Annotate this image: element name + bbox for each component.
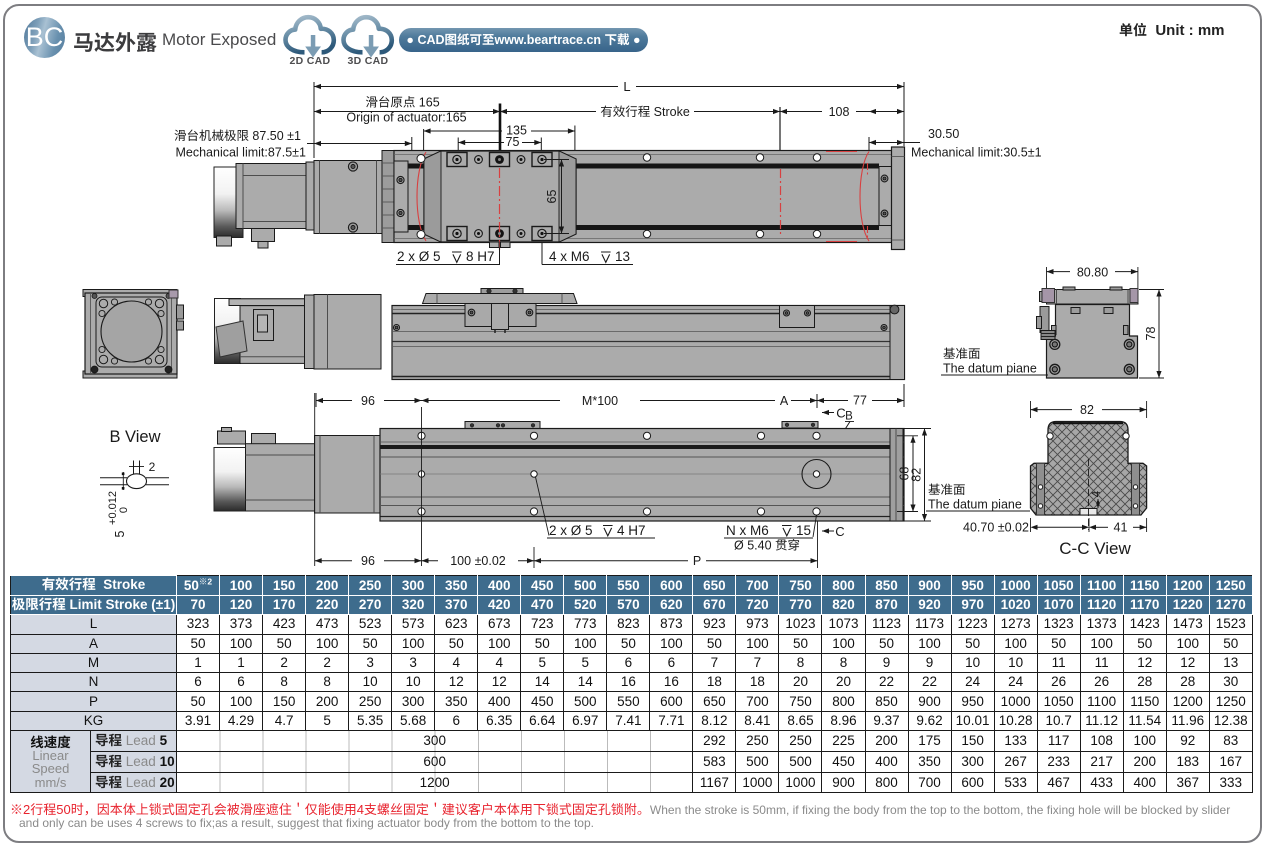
svg-text:5: 5 [113, 530, 127, 537]
svg-text:N x M6: N x M6 [726, 523, 769, 538]
svg-text:82: 82 [910, 468, 924, 482]
svg-text:100 ±0.02: 100 ±0.02 [450, 554, 506, 568]
svg-text:15: 15 [796, 523, 811, 538]
svg-text:基准面: 基准面 [943, 347, 981, 361]
svg-text:4 H7: 4 H7 [617, 523, 646, 538]
svg-text:30.50: 30.50 [928, 127, 959, 141]
svg-text:2: 2 [149, 460, 156, 474]
svg-text:M*100: M*100 [582, 394, 618, 408]
svg-text:40.70 ±0.02: 40.70 ±0.02 [963, 521, 1029, 535]
svg-text:L: L [623, 79, 630, 94]
svg-text:77: 77 [853, 394, 867, 408]
svg-text:P: P [693, 554, 701, 568]
svg-text:0: 0 [118, 507, 130, 513]
svg-text:Ø 5.40 贯穿: Ø 5.40 贯穿 [734, 539, 800, 553]
svg-text:A: A [780, 394, 789, 408]
svg-text:滑台原点 165: 滑台原点 165 [365, 96, 439, 110]
svg-text:82: 82 [1080, 403, 1094, 417]
svg-text:有效行程 Stroke: 有效行程 Stroke [600, 105, 690, 119]
svg-text:8 H7: 8 H7 [466, 249, 495, 264]
svg-text:C: C [835, 524, 844, 539]
svg-text:108: 108 [829, 105, 850, 119]
svg-text:The datum piane: The datum piane [943, 362, 1037, 376]
svg-text:基准面: 基准面 [928, 483, 966, 497]
svg-text:65: 65 [545, 190, 559, 204]
svg-text:75: 75 [506, 135, 520, 149]
svg-text:4: 4 [1091, 490, 1103, 497]
svg-text:4 x M6: 4 x M6 [549, 249, 590, 264]
svg-text:B View: B View [109, 428, 160, 446]
svg-text:The datum piane: The datum piane [928, 498, 1022, 512]
svg-text:滑台机械极限 87.50 ±1: 滑台机械极限 87.50 ±1 [174, 129, 301, 143]
svg-text:80.80: 80.80 [1077, 266, 1108, 280]
svg-text:Mechanical limit:87.5±1: Mechanical limit:87.5±1 [175, 146, 306, 160]
svg-text:Mechanical limit:30.5±1: Mechanical limit:30.5±1 [911, 146, 1042, 160]
svg-text:C-C View: C-C View [1059, 539, 1131, 558]
svg-text:Origin of actuator:165: Origin of actuator:165 [346, 111, 466, 125]
svg-text:2 x Ø 5: 2 x Ø 5 [397, 249, 441, 264]
svg-text:2 x Ø 5: 2 x Ø 5 [549, 523, 593, 538]
svg-text:78: 78 [1144, 327, 1158, 341]
svg-text:96: 96 [361, 394, 375, 408]
svg-text:13: 13 [615, 249, 630, 264]
svg-text:41: 41 [1114, 521, 1128, 535]
svg-text:96: 96 [361, 554, 375, 568]
svg-text:B: B [845, 411, 853, 423]
